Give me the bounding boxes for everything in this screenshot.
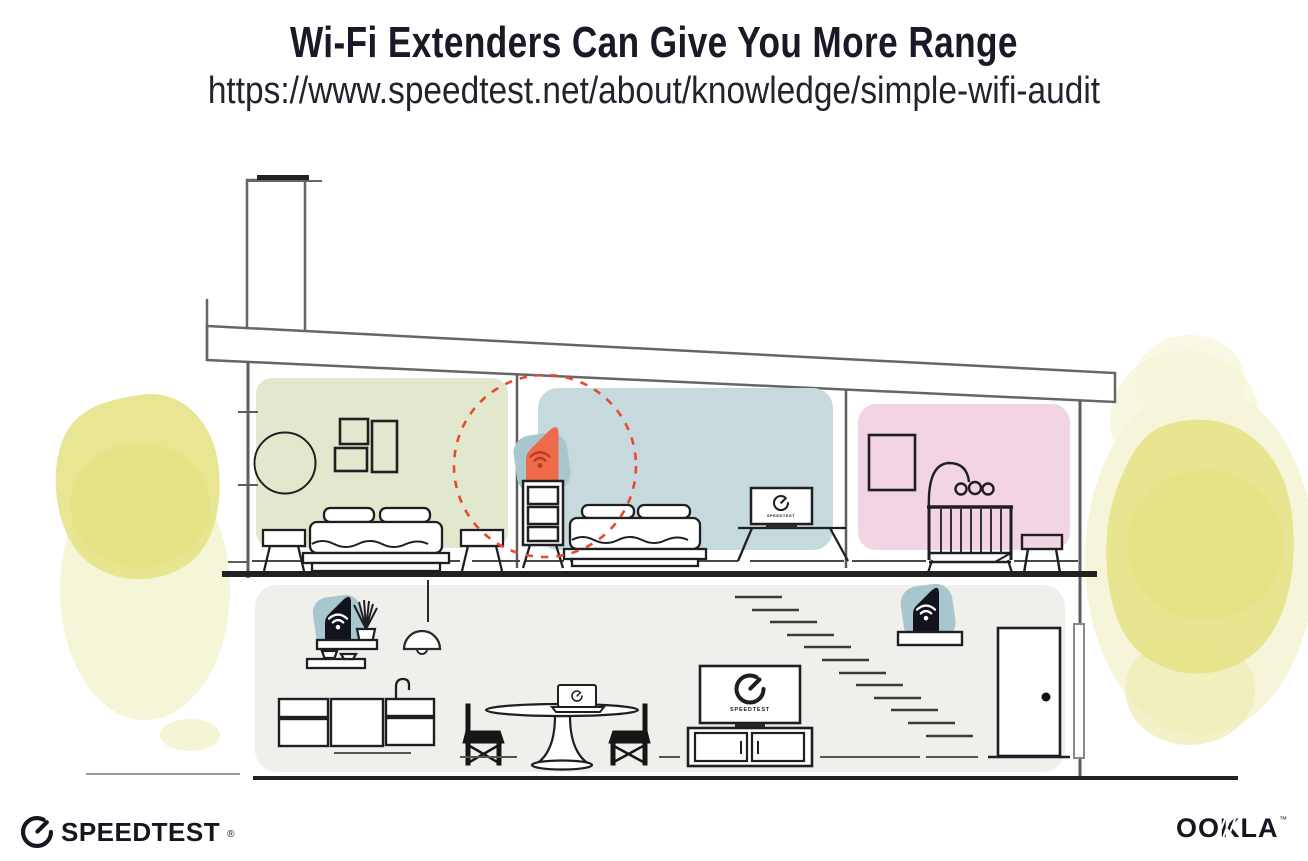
foliage-left (56, 394, 230, 751)
room-nursery (858, 404, 1070, 550)
speedtest-gauge-icon (20, 815, 54, 849)
bowl (341, 654, 356, 659)
ookla-wordmark-svg: OOKLA ™ (1176, 812, 1288, 844)
downspout (1074, 624, 1084, 758)
nightstand-left (263, 530, 305, 571)
shelf (898, 632, 962, 645)
ookla-logo: OOKLA ™ (1176, 812, 1288, 849)
speedtest-wordmark: SPEEDTEST (61, 817, 220, 848)
registered-mark: ® (227, 829, 234, 840)
cup (322, 651, 337, 658)
speedtest-logo: SPEEDTEST ® (20, 815, 234, 849)
media-console (688, 728, 812, 766)
tv-screen-label: SPEEDTEST (730, 707, 770, 713)
trademark-mark: ™ (1279, 815, 1287, 824)
house-illustration: SPEEDTEST (0, 0, 1308, 861)
door-knob (1042, 693, 1051, 702)
living-tv-area: SPEEDTEST (688, 666, 812, 766)
foliage-right (1085, 335, 1308, 745)
chimney (247, 178, 322, 333)
infographic-page: Wi-Fi Extenders Can Give You More Range … (0, 0, 1308, 861)
tv-screen-label: SPEEDTEST (767, 513, 795, 518)
nightstand-right (461, 530, 503, 571)
front-door (988, 628, 1070, 757)
tv-foot (735, 724, 765, 727)
laptop (552, 685, 604, 712)
